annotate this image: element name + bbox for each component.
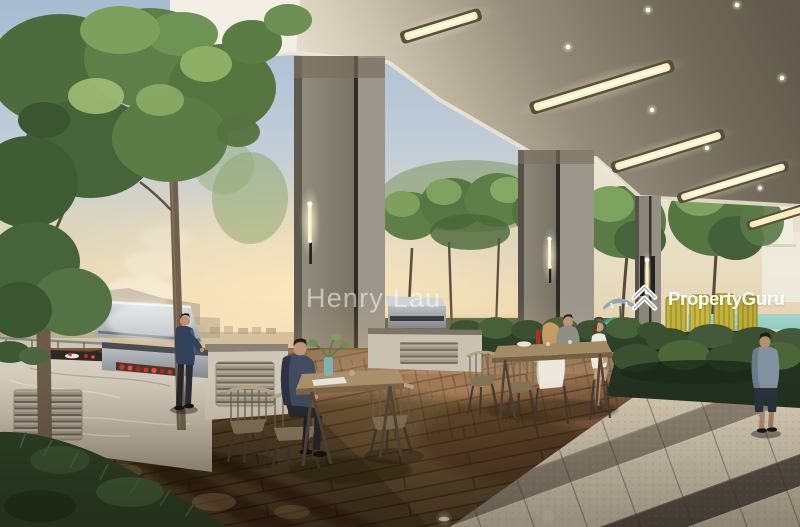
wall-sconce — [542, 228, 558, 284]
bowl — [517, 341, 531, 346]
bottle — [536, 330, 540, 344]
terrace-rendering — [0, 0, 800, 527]
wall-sconce — [640, 250, 655, 302]
rendering-canvas: Henry Lau PropertyGuru — [0, 0, 800, 527]
bbq-grill-small — [386, 296, 446, 328]
vignette — [0, 380, 800, 527]
cup — [349, 370, 355, 376]
column-right — [635, 196, 661, 342]
